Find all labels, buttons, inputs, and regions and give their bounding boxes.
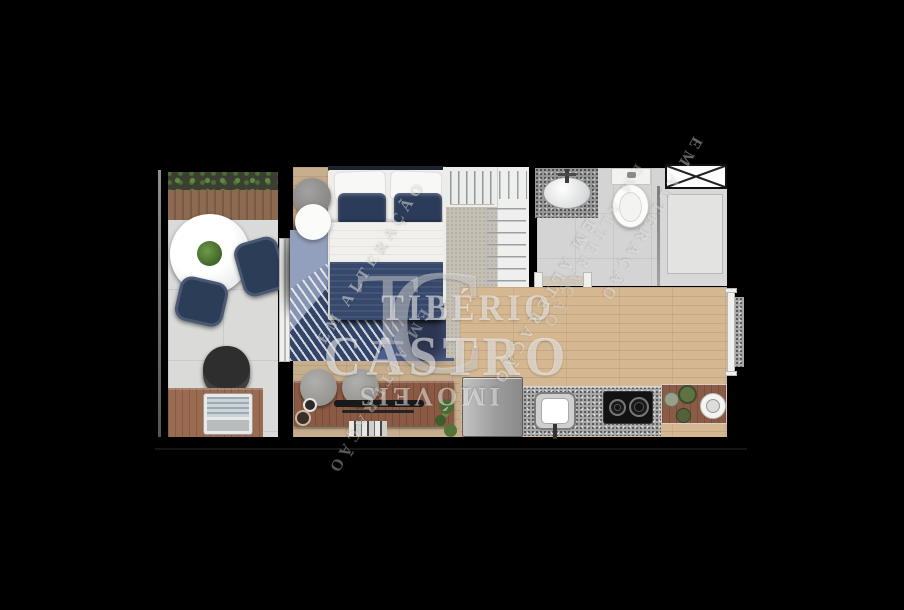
bed-blanket-fold [330, 222, 444, 264]
pillow-navy-right [394, 193, 442, 225]
burner-2 [629, 397, 649, 417]
balcony-planter [168, 172, 278, 190]
plate-center [706, 399, 720, 413]
shower-tray [667, 194, 723, 274]
shower-glass-partition [657, 186, 660, 286]
service-shaft [665, 164, 727, 189]
media-bar [334, 400, 424, 407]
bowl-gray [664, 392, 679, 407]
pillow-navy-left [338, 193, 386, 225]
sink-faucet [565, 169, 569, 183]
toilet-flush-button [627, 172, 636, 178]
cup-2 [295, 410, 311, 426]
shaft-cross-icon [667, 166, 725, 187]
kitchen-faucet [553, 424, 557, 439]
laptop-screen [207, 397, 249, 417]
sideboard-plant [439, 399, 454, 414]
sink-faucet-handle [558, 173, 576, 176]
toilet-seat [619, 192, 642, 222]
closet-hangers-side [486, 208, 526, 296]
kitchen-window-cap-bottom [725, 371, 737, 376]
kitchen-window-cap-top [725, 288, 737, 293]
plan-baseline [155, 448, 747, 450]
balcony-railing [158, 170, 161, 437]
table-plant [197, 241, 222, 266]
media-remote [342, 410, 414, 413]
burner-1 [609, 399, 626, 416]
kitchen-window [727, 291, 735, 373]
refrigerator [462, 377, 523, 437]
floorplan-canvas: T C TIBÉRIO CASTRO IMÓVEIS EM ALTERAÇÃO … [0, 0, 904, 610]
closet-hangers-top [450, 171, 494, 205]
book-stack [349, 421, 387, 436]
bedside-table [295, 204, 331, 240]
laptop-keyboard [207, 420, 249, 431]
closet-hangers-top-2 [499, 171, 527, 199]
bowl-green [678, 385, 697, 404]
bathroom-door-threshold [543, 276, 583, 285]
window-sill [735, 297, 744, 367]
bed-duvet [330, 262, 444, 320]
bowl-olive [676, 408, 691, 423]
kitchen-sink-basin [541, 398, 569, 424]
